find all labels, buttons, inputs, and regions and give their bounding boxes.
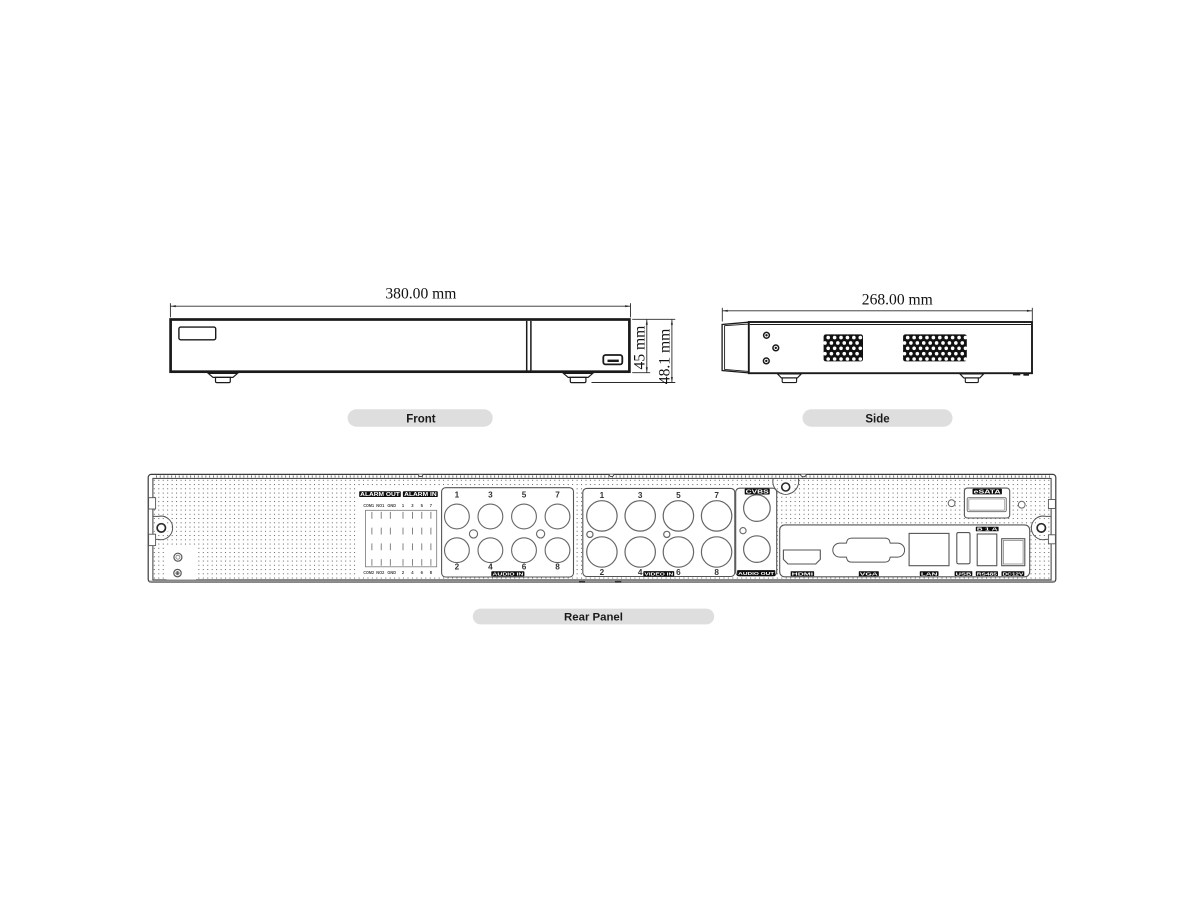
svg-text:USB: USB bbox=[956, 571, 972, 576]
svg-text:380.00 mm: 380.00 mm bbox=[385, 285, 456, 302]
svg-text:B 1 A: B 1 A bbox=[977, 527, 998, 532]
svg-text:1: 1 bbox=[455, 491, 460, 500]
svg-text:268.00 mm: 268.00 mm bbox=[862, 292, 933, 309]
svg-text:RS485: RS485 bbox=[977, 571, 998, 576]
svg-text:7: 7 bbox=[714, 491, 719, 500]
svg-text:NO1: NO1 bbox=[376, 503, 385, 508]
svg-text:5: 5 bbox=[522, 491, 527, 500]
svg-text:3: 3 bbox=[638, 491, 643, 500]
svg-text:8: 8 bbox=[714, 568, 719, 577]
svg-text:6: 6 bbox=[522, 563, 527, 572]
svg-text:6: 6 bbox=[676, 568, 681, 577]
svg-text:48.1 mm: 48.1 mm bbox=[657, 329, 674, 384]
svg-text:Side: Side bbox=[865, 414, 889, 426]
svg-text:Front: Front bbox=[406, 414, 436, 426]
svg-text:AUDIO IN: AUDIO IN bbox=[492, 572, 524, 577]
svg-text:ALARM OUT: ALARM OUT bbox=[360, 492, 401, 498]
svg-text:2: 2 bbox=[455, 563, 460, 572]
svg-text:HDMI: HDMI bbox=[792, 571, 813, 576]
svg-text:eSATA: eSATA bbox=[974, 489, 1001, 495]
svg-text:ALARM IN: ALARM IN bbox=[404, 492, 437, 498]
svg-text:5: 5 bbox=[676, 491, 681, 500]
svg-text:1: 1 bbox=[600, 491, 605, 500]
svg-text:COM1: COM1 bbox=[363, 503, 374, 508]
svg-text:LAN: LAN bbox=[921, 571, 938, 576]
svg-text:NO2: NO2 bbox=[376, 570, 385, 575]
svg-text:AUDIO OUT: AUDIO OUT bbox=[738, 571, 774, 577]
svg-text:Rear Panel: Rear Panel bbox=[564, 612, 623, 624]
svg-text:2: 2 bbox=[600, 568, 605, 577]
svg-text:4: 4 bbox=[638, 568, 643, 577]
svg-text:VIDEO IN: VIDEO IN bbox=[644, 572, 674, 577]
svg-text:8: 8 bbox=[555, 563, 560, 572]
svg-text:GND: GND bbox=[387, 570, 396, 575]
svg-text:7: 7 bbox=[555, 491, 560, 500]
svg-text:DC12V: DC12V bbox=[1003, 571, 1024, 576]
svg-text:3: 3 bbox=[488, 491, 493, 500]
svg-text:GND: GND bbox=[387, 503, 396, 508]
svg-text:VGA: VGA bbox=[860, 571, 880, 576]
svg-text:45 mm: 45 mm bbox=[632, 326, 649, 370]
svg-text:4: 4 bbox=[488, 563, 493, 572]
svg-text:COM2: COM2 bbox=[363, 570, 374, 575]
